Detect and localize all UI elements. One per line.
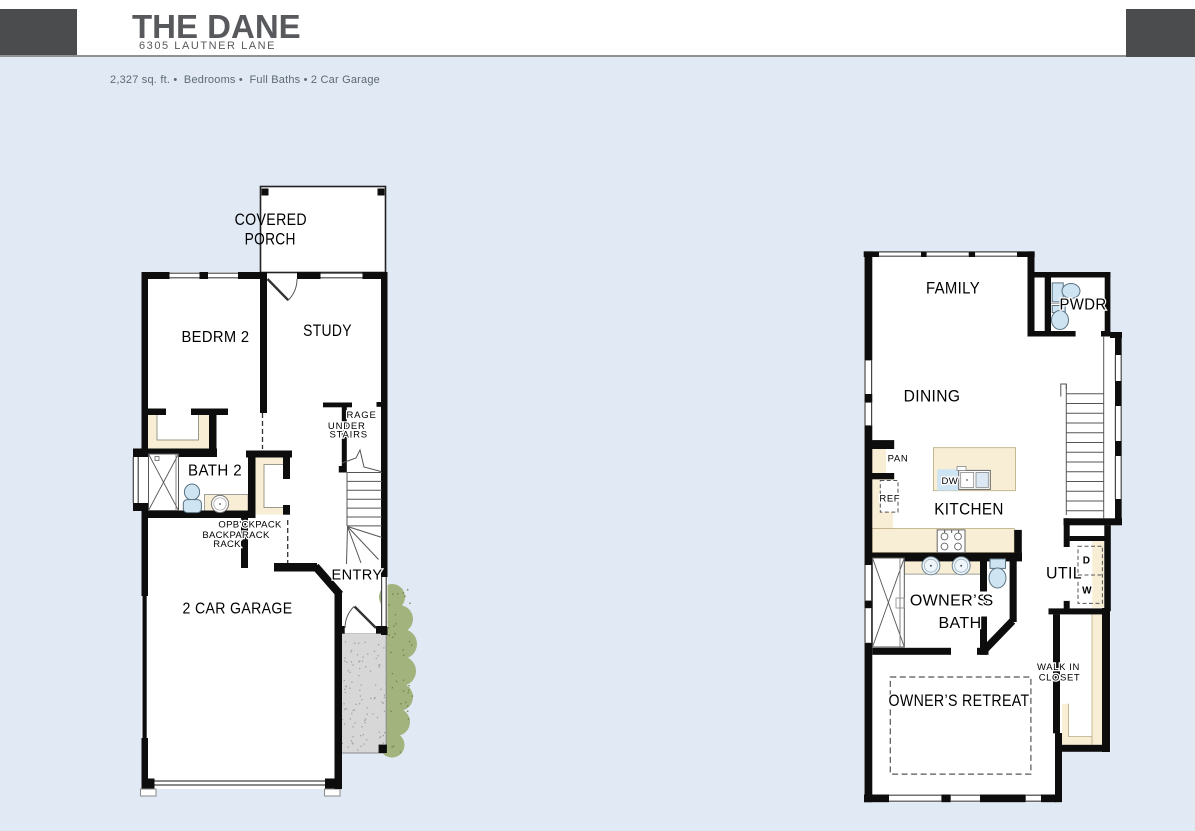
svg-text:W: W (1082, 585, 1092, 596)
svg-text:BATH: BATH (938, 615, 981, 632)
svg-text:CLOSET: CLOSET (1039, 673, 1081, 684)
svg-text:REF: REF (879, 494, 900, 505)
svg-text:WALK IN: WALK IN (1037, 662, 1080, 673)
svg-text:BEDRM 2: BEDRM 2 (182, 329, 250, 346)
svg-text:OWNER’S: OWNER’S (910, 593, 988, 610)
svg-text:PAN: PAN (888, 454, 909, 465)
svg-text:STAIRS: STAIRS (329, 430, 367, 441)
svg-text:DINING: DINING (904, 387, 961, 406)
svg-text:FAMILY: FAMILY (926, 279, 980, 298)
svg-text:KITCHEN: KITCHEN (934, 500, 1004, 519)
svg-text:COVERED: COVERED (235, 210, 307, 229)
svg-text:S: S (982, 593, 993, 610)
svg-text:BATH 2: BATH 2 (188, 463, 242, 480)
svg-text:RACK: RACK (213, 539, 241, 550)
svg-text:OPB'CKPACK: OPB'CKPACK (218, 520, 282, 531)
svg-text:PORCH: PORCH (245, 230, 296, 249)
svg-text:UTIL: UTIL (1046, 564, 1082, 583)
svg-text:STUDY: STUDY (303, 321, 352, 340)
svg-text:DW: DW (941, 476, 958, 487)
svg-text:PWDR: PWDR (1060, 297, 1107, 314)
svg-text:ENTRY: ENTRY (332, 567, 383, 584)
svg-text:RAGE: RAGE (347, 410, 377, 421)
svg-text:D: D (1083, 556, 1091, 567)
svg-text:OWNER’S RETREAT: OWNER’S RETREAT (889, 691, 1030, 710)
svg-text:2 CAR GARAGE: 2 CAR GARAGE (183, 601, 293, 618)
